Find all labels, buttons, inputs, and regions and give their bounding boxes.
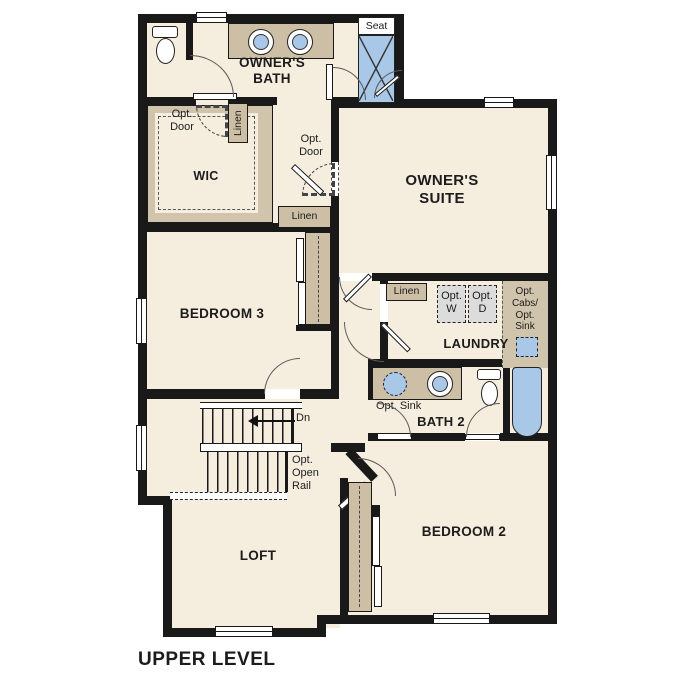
hall-linen-label: Linen (278, 210, 331, 222)
bedroom3-closet-door-1 (296, 238, 304, 282)
bath2-sink-basin (432, 376, 448, 392)
stair-lower-edge (285, 452, 288, 492)
stair-landing-rail (200, 443, 302, 452)
wic-label: WIC (156, 169, 256, 184)
plan-title: UPPER LEVEL (138, 649, 358, 671)
laundry-linen-label: Linen (386, 285, 427, 297)
stair-top-rail (200, 402, 302, 409)
window-loft-bottom (215, 626, 273, 637)
bedroom3-closet-door-2 (298, 282, 306, 325)
stair-upper-run (202, 409, 292, 446)
linen-vertical-label: Linen (232, 103, 244, 143)
bedroom2-label: BEDROOM 2 (394, 524, 534, 540)
opt-cabs-label: Opt. Cabs/ Opt. Sink (503, 286, 547, 333)
vanity-sink-right-basin (292, 34, 308, 50)
bath-vanity-counter (228, 23, 334, 59)
owners-bath-label: OWNER'S BATH (202, 55, 342, 87)
bedroom2-closet-door-2 (374, 566, 382, 607)
stair-dn-arrow-line (257, 420, 295, 422)
stair-upper-edge (291, 409, 294, 443)
laundry-label: LAUNDRY (416, 336, 536, 351)
bath2-label: BATH 2 (406, 414, 476, 429)
toilet-tank-bath2 (477, 369, 501, 380)
wall-bath-bottom-a (147, 97, 196, 105)
opt-open-rail-label: Opt. Open Rail (292, 454, 332, 493)
owners-suite-label: OWNER'S SUITE (362, 172, 522, 207)
toilet-bowl-owners-bath (156, 38, 175, 64)
wic-opt-door-label: Opt. Door (160, 108, 204, 134)
wall-bedroom3-bottom-b (300, 389, 331, 399)
window-bath-top (196, 12, 227, 23)
stair-dn-arrowhead (248, 415, 258, 427)
wall-bedroom3-bottom-a (138, 389, 265, 399)
bedroom3-label: BEDROOM 3 (152, 306, 292, 322)
window-stair-left (136, 425, 147, 471)
wall-suite-top (395, 99, 557, 108)
opt-washer-label: Opt. W (437, 290, 466, 316)
bath2-opt-sink (383, 372, 407, 396)
opt-dryer-label: Opt. D (468, 290, 497, 316)
toilet-tank-owners-bath (152, 26, 178, 38)
window-bedroom3-left (136, 298, 147, 344)
window-suite-top (484, 97, 514, 108)
floor-plan-canvas: Linen Seat Opt. Door Opt. Door Linen (0, 0, 687, 687)
opt-open-rail (170, 492, 287, 500)
bedroom2-closet-rod (359, 486, 360, 607)
bathtub (512, 367, 542, 437)
window-bedroom2-bottom (433, 613, 490, 624)
suite-opt-door-label: Opt. Door (289, 133, 333, 159)
dn-label: Dn (296, 412, 318, 425)
wall-tub-left (503, 367, 510, 441)
seat-label: Seat (358, 20, 395, 32)
wall-left-loft (163, 496, 172, 637)
bedroom2-closet (348, 482, 372, 612)
stair-lower-run (207, 452, 287, 492)
loft-label: LOFT (208, 548, 308, 564)
bedroom3-closet-rod (318, 236, 319, 322)
bedroom2-closet-door-1 (372, 516, 380, 566)
vanity-sink-left-basin (253, 34, 269, 50)
bedroom3-closet-bottom-edge (296, 325, 339, 331)
wall-bedroom3-closet-right (331, 232, 339, 399)
window-suite-right (546, 155, 557, 210)
